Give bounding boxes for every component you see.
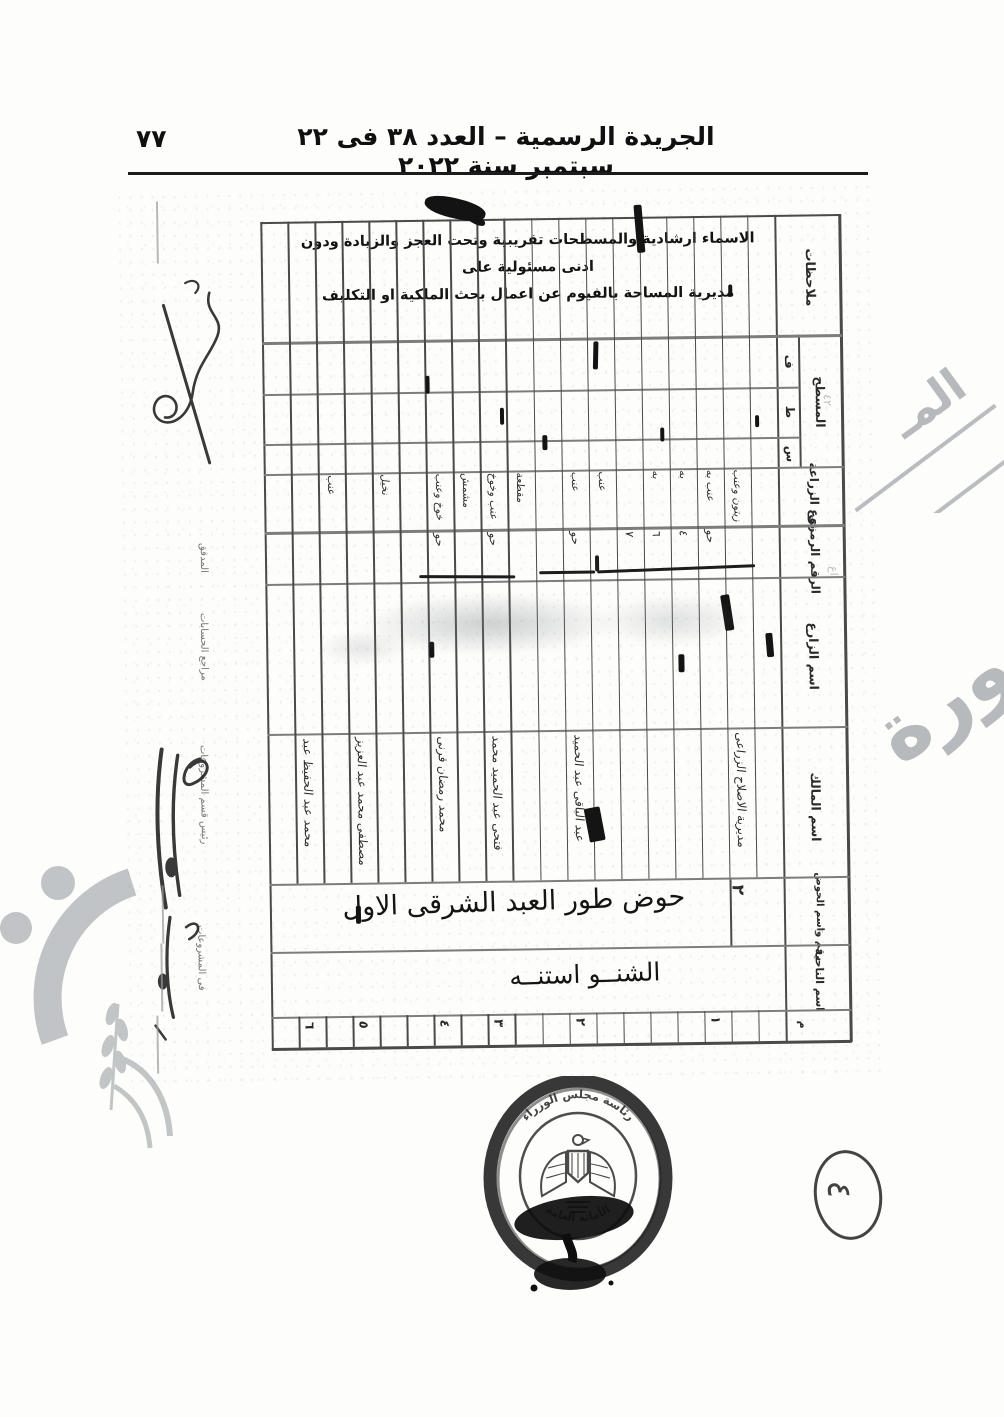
header-owner-name: اسم المالك <box>808 772 824 841</box>
row-line <box>265 524 845 535</box>
serial-entry: ٢ <box>572 1017 587 1027</box>
table-border <box>774 215 788 1043</box>
code-entry: حو <box>487 532 501 547</box>
ink-mark <box>584 806 606 842</box>
column-line <box>704 1011 706 1042</box>
column-line <box>450 219 461 881</box>
column-line <box>639 217 650 879</box>
column-line <box>353 1016 355 1047</box>
column-line <box>298 1017 300 1048</box>
pencil-note: اع <box>827 566 840 576</box>
code-entry: حو <box>433 533 447 548</box>
column-line <box>407 1015 409 1046</box>
column-line <box>477 219 488 881</box>
column-line <box>341 221 352 883</box>
column-line <box>720 216 731 878</box>
ink-mark <box>542 435 547 450</box>
ink-mark <box>356 906 361 924</box>
column-line <box>758 1010 760 1041</box>
photocopy-smudge <box>318 630 408 665</box>
pencil-note: ع <box>814 928 827 935</box>
table-border <box>260 222 274 1050</box>
column-line <box>677 1011 679 1042</box>
corner-mark: ٤ <box>808 1142 892 1250</box>
header-remarks: ملاحظات <box>802 248 818 306</box>
ink-mark <box>660 427 664 441</box>
crop-entry: به <box>649 470 661 480</box>
column-line <box>396 220 407 882</box>
margin-signatures <box>125 254 256 1076</box>
crop-entry: نخيل <box>379 474 391 496</box>
column-line <box>596 1012 598 1043</box>
ink-mark <box>593 341 599 369</box>
column-line <box>542 1013 544 1044</box>
crop-entry: عنب <box>568 471 580 492</box>
serial-entry: ٦ <box>301 1021 316 1031</box>
code-underline <box>419 575 515 578</box>
column-line <box>558 218 569 880</box>
header-district: اسم الناحية <box>812 948 826 1011</box>
crop-entry: خوخ وعنب <box>433 473 446 521</box>
serial-entry: ٤ <box>437 1019 452 1029</box>
column-line <box>585 218 596 880</box>
row-line <box>270 944 850 954</box>
ink-mark <box>755 415 759 427</box>
column-line <box>531 218 542 880</box>
column-line <box>423 220 434 882</box>
column-line <box>612 217 623 879</box>
ink-mark <box>678 654 684 672</box>
official-seal: رئاسة مجلس الوزراء الأمانة العامة <box>478 1076 678 1304</box>
owner-entry: مصطفى محمد عبد العزيز <box>355 737 371 867</box>
ink-mark <box>425 376 429 394</box>
column-line <box>666 216 677 878</box>
crop-entry: مشمش <box>460 473 473 509</box>
pencil-note: ٤٢ <box>821 394 834 406</box>
table-border <box>798 335 801 467</box>
owner-entry: مديرية الاصلاح الزراعى <box>733 732 749 849</box>
owner-entry: فتحى عبد الحميد محمد <box>490 735 506 851</box>
column-line <box>380 1015 382 1046</box>
survey-table: عنبنخيلخوخ وعنبمشمشعنب وخوخمقطعةعنبعنببه… <box>0 0 995 8</box>
header-area-feddan: ف <box>782 355 796 369</box>
row-line <box>265 576 845 586</box>
code-underline <box>539 570 595 574</box>
signature-top <box>152 281 221 464</box>
table-border <box>272 1040 852 1051</box>
header-area-sahm: س <box>783 446 797 463</box>
code-underline <box>597 564 755 573</box>
ink-mark <box>728 285 732 296</box>
row-line <box>271 1009 851 1019</box>
district-name-entry: الشنــو استنــه <box>429 955 740 994</box>
crop-entry: زيتون وعنب <box>731 469 744 523</box>
column-line <box>488 1014 490 1045</box>
column-line <box>693 216 704 878</box>
gazette-page: ٧٧ الجريدة الرسمية – العدد ٣٨ فى ٢٢ سبتم… <box>0 0 1004 1417</box>
header-area-qirat: ط <box>783 406 797 419</box>
owner-entry: عبد الباقى عبد الحميد <box>571 734 587 843</box>
crop-entry: عنب <box>595 471 607 492</box>
signature-middle <box>157 749 210 908</box>
column-line <box>461 1014 463 1045</box>
column-line <box>747 215 758 877</box>
ink-mark <box>765 633 774 658</box>
header-serial: م <box>796 1020 809 1028</box>
code-entry: ٦ <box>649 530 663 538</box>
ink-mark <box>500 408 504 425</box>
code-entry: ٧ <box>622 530 636 538</box>
column-line <box>731 1011 733 1042</box>
row-line <box>264 466 844 476</box>
column-line <box>569 1013 571 1044</box>
crop-entry: به <box>677 470 689 480</box>
column-line <box>515 1014 517 1045</box>
column-line <box>434 1015 436 1046</box>
code-entry: ٤ <box>676 530 690 538</box>
owner-entry: محمد رمضان قرنى <box>436 736 451 833</box>
row-line <box>262 334 842 345</box>
serial-entry: ٣ <box>491 1018 506 1028</box>
column-line <box>314 221 325 883</box>
serial-entry: ٥ <box>356 1020 371 1030</box>
column-line <box>368 221 379 883</box>
crop-entry: عنب وخوخ <box>487 472 500 520</box>
code-entry: حو <box>568 531 582 546</box>
fold-mark <box>156 202 159 264</box>
column-line <box>287 222 298 884</box>
code-underline <box>595 555 599 571</box>
crop-entry: مقطعة <box>514 472 526 504</box>
code-entry: حو <box>703 529 717 544</box>
column-line <box>325 1016 327 1047</box>
owner-entry: محمد عبد الحفيظ عبد <box>301 738 317 848</box>
crop-entry: عنب به <box>704 469 716 502</box>
column-line <box>504 219 515 881</box>
serial-entry: ١ <box>707 1015 722 1025</box>
row-line <box>267 726 847 736</box>
table-border <box>838 214 852 1042</box>
column-line <box>623 1012 625 1043</box>
crop-entry: عنب <box>325 475 337 496</box>
table-border <box>260 214 840 224</box>
header-farmer-name: اسم الزارع <box>806 622 822 690</box>
ink-blot <box>512 1190 636 1292</box>
column-line <box>650 1012 652 1043</box>
